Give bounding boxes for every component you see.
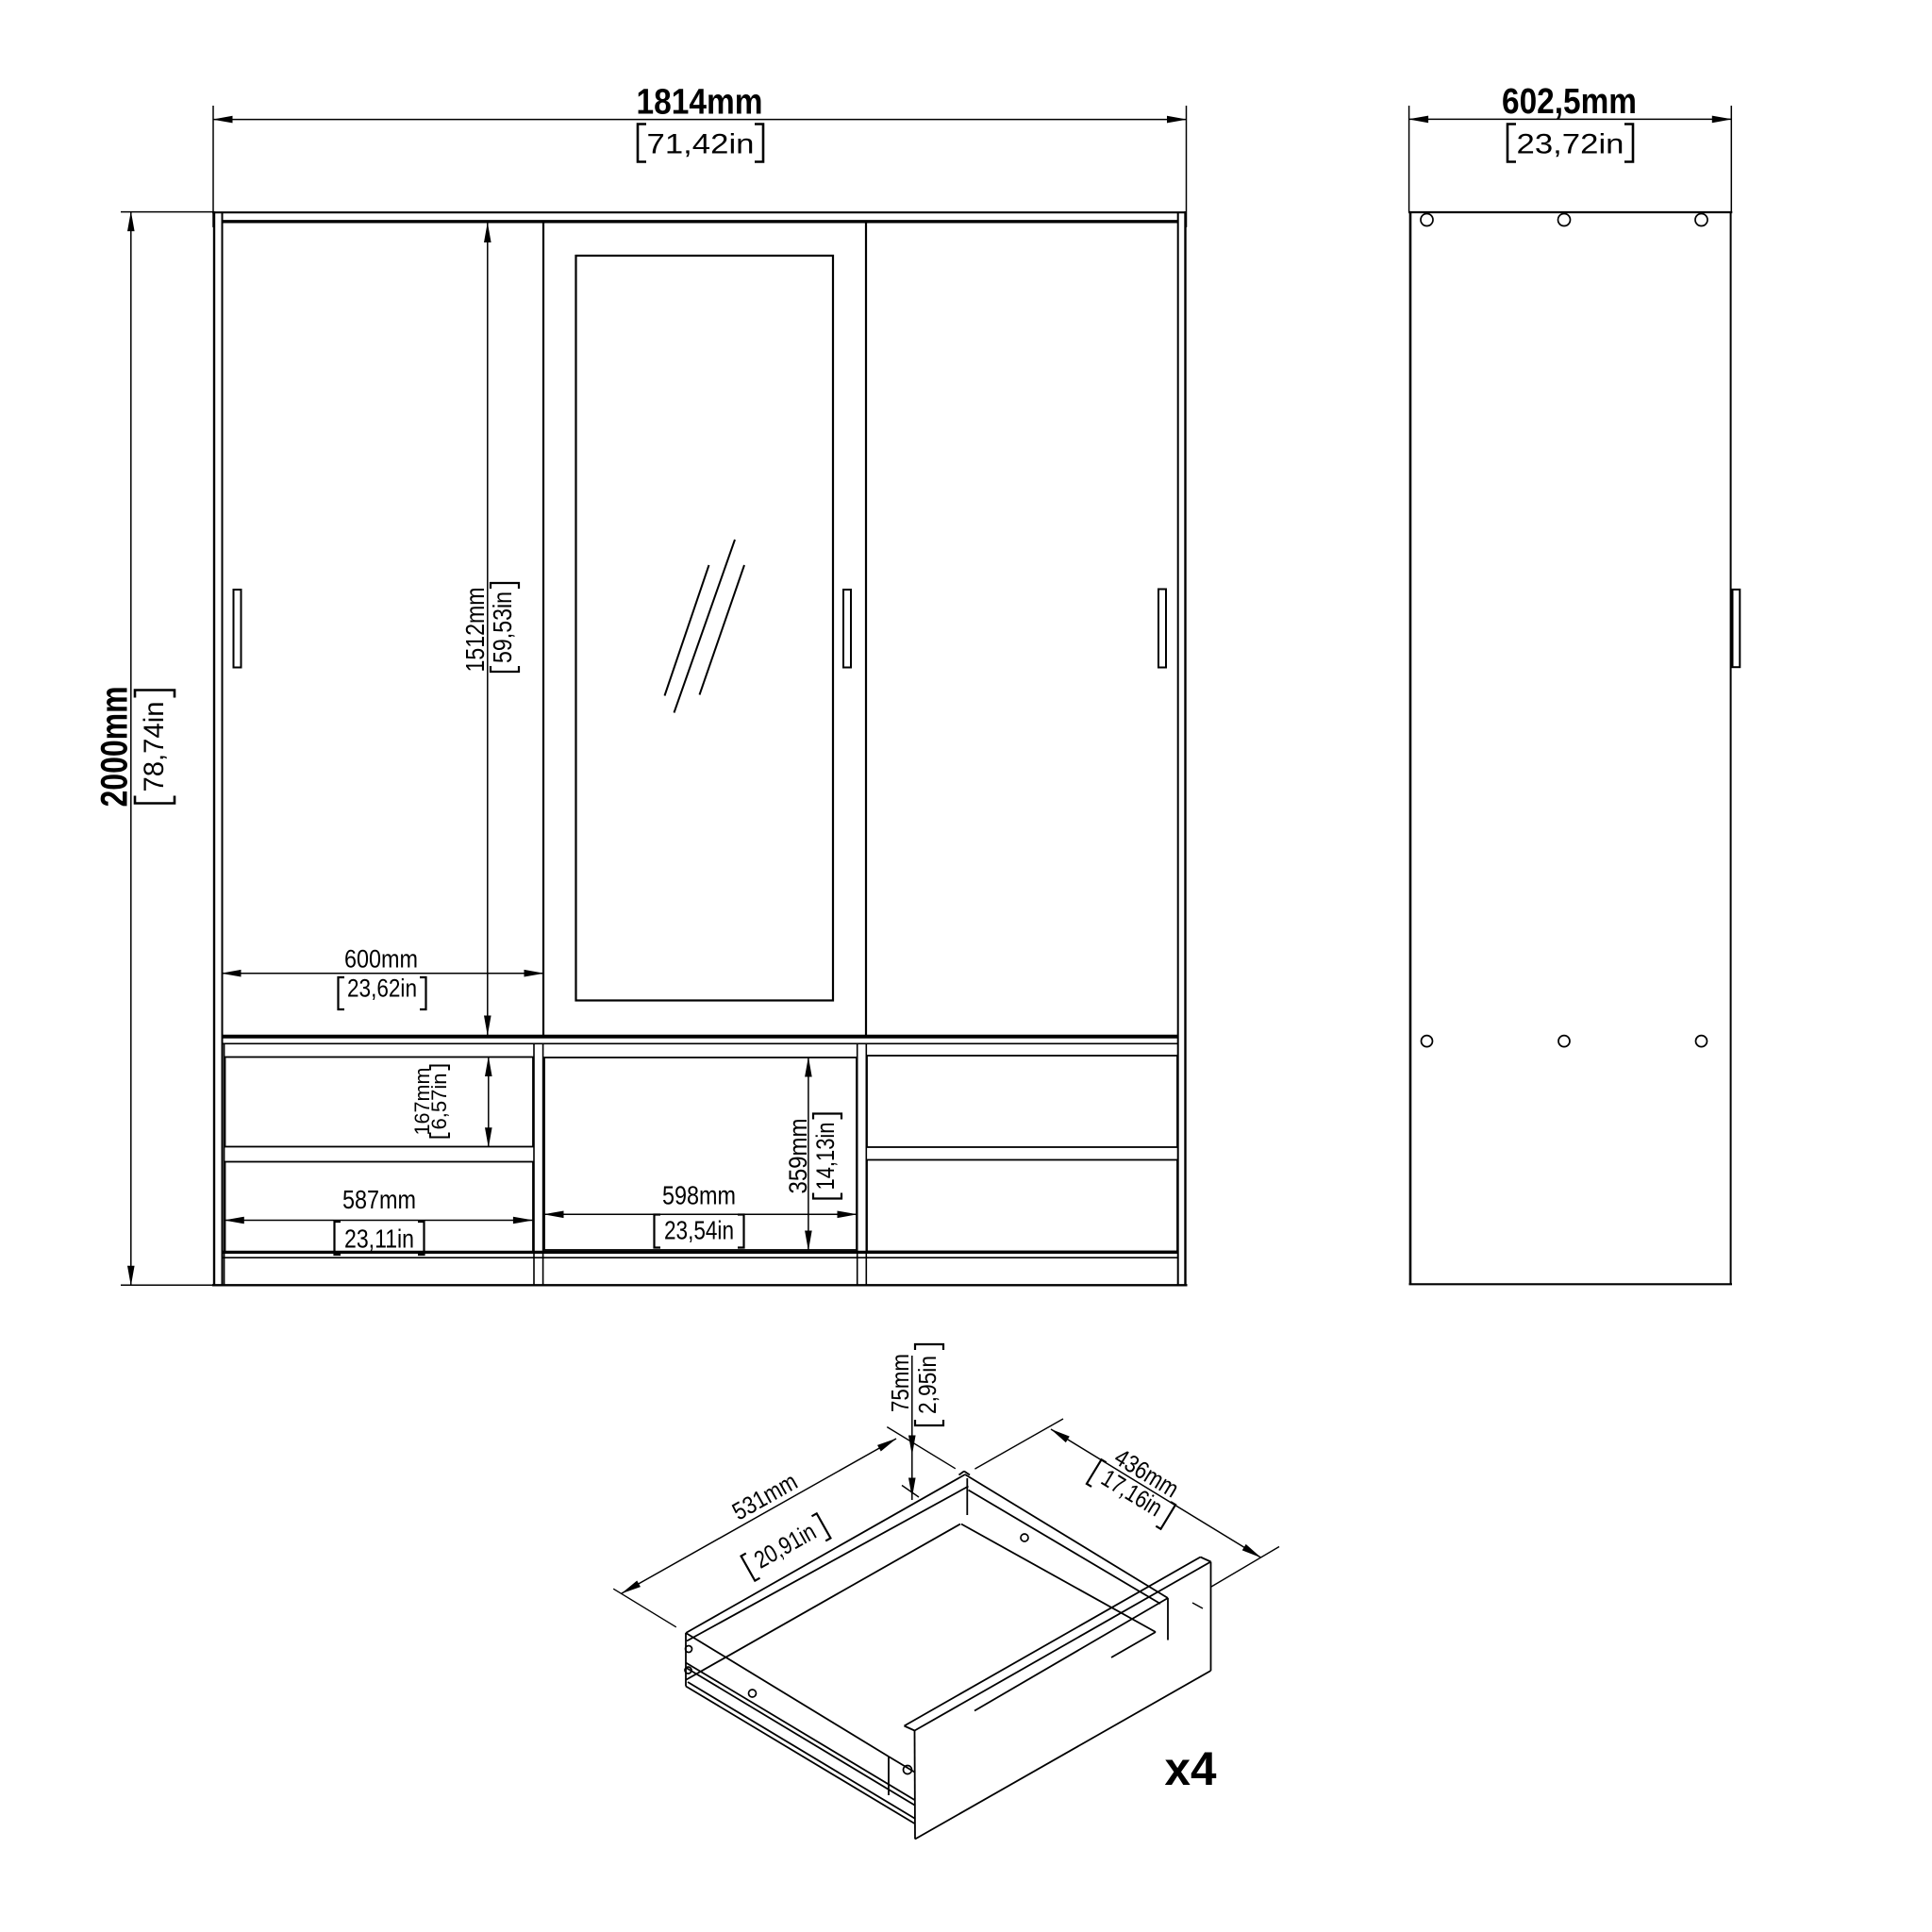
svg-text:x4: x4 [1165,1742,1217,1795]
svg-text:587mm: 587mm [342,1185,416,1214]
svg-text:78,74in: 78,74in [139,702,170,792]
svg-text:23,62in: 23,62in [347,974,417,1003]
svg-text:2000mm: 2000mm [94,687,136,808]
svg-text:1814mm: 1814mm [637,83,763,123]
svg-text:359mm: 359mm [784,1119,812,1194]
svg-text:23,72in: 23,72in [1517,129,1624,160]
svg-text:23,54in: 23,54in [664,1216,734,1245]
svg-text:602,5mm: 602,5mm [1502,82,1637,122]
svg-text:1512mm: 1512mm [460,588,490,673]
svg-text:600mm: 600mm [344,945,418,974]
svg-text:71,42in: 71,42in [647,129,755,160]
svg-text:6,57in: 6,57in [427,1074,451,1130]
svg-text:75mm: 75mm [886,1354,914,1412]
svg-text:23,11in: 23,11in [344,1224,414,1254]
svg-text:14,13in: 14,13in [811,1123,840,1191]
svg-text:598mm: 598mm [662,1181,736,1210]
svg-text:2,95in: 2,95in [913,1356,941,1414]
svg-text:59,53in: 59,53in [488,591,517,663]
